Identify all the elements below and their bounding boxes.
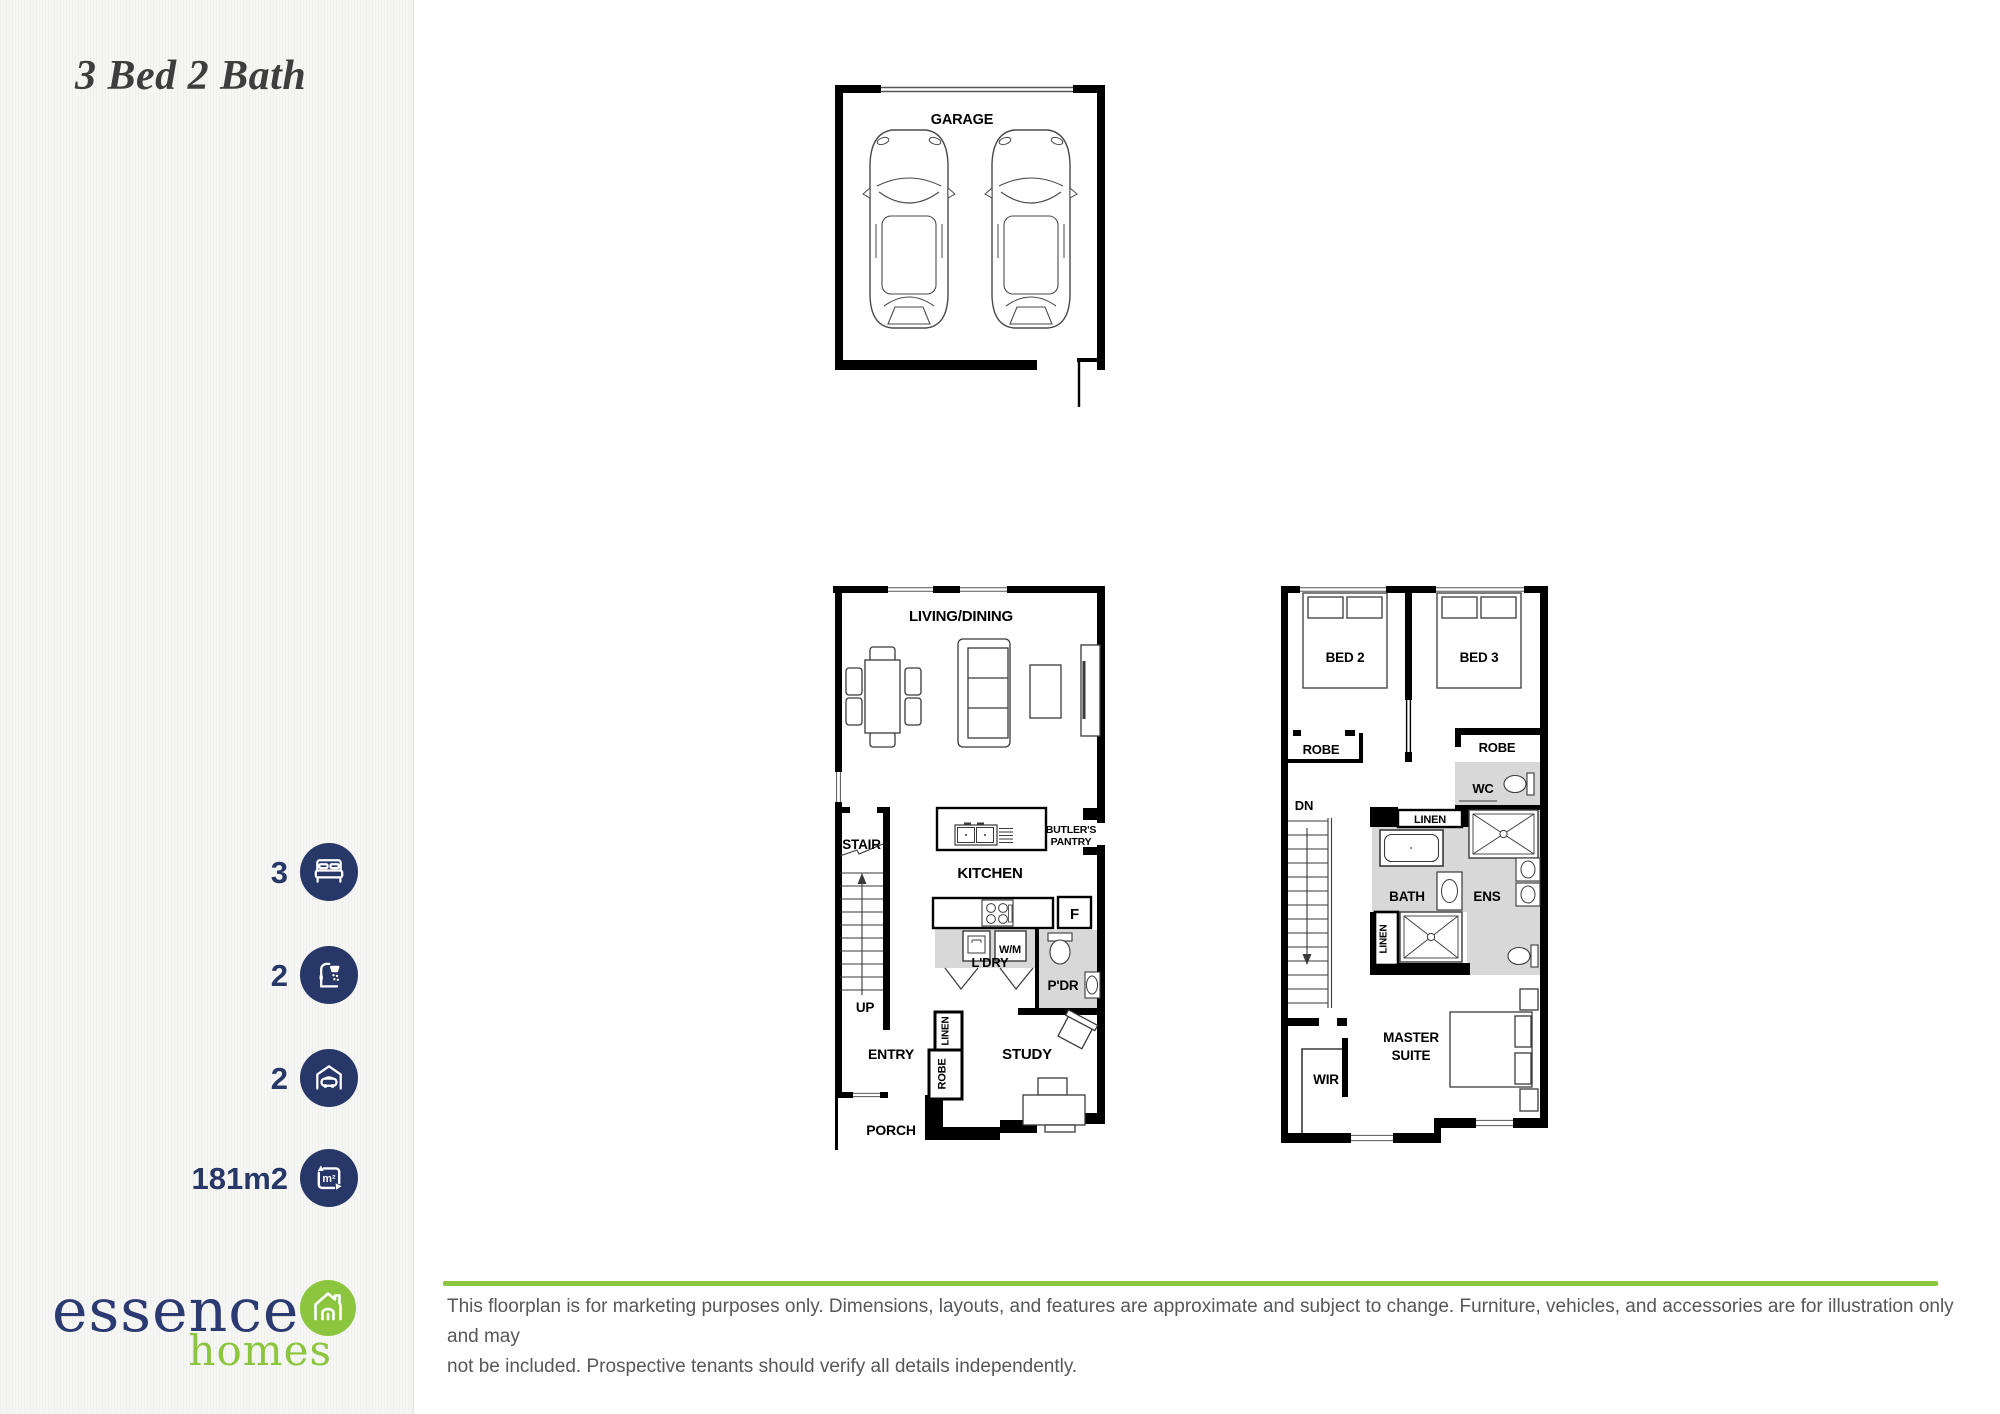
robe-label: ROBE [937,1059,949,1090]
spec-row-beds: 3 [150,843,360,903]
ens-shower-lower [1400,912,1462,962]
bed2-label: BED 2 [1326,650,1365,665]
kitchen-label: KITCHEN [957,865,1022,882]
shower-icon [300,946,358,1004]
study-desk [1023,1078,1085,1132]
tv-unit [1081,645,1100,736]
bath-basin [1437,872,1462,910]
spec-row-area: 181m2 m² [150,1149,360,1209]
spec-row-baths: 2 [150,946,360,1006]
pdr-label: P'DR [1048,978,1079,993]
bed-icon [300,843,358,901]
upper-floor-plan: BED 2 BED 3 ROBE ROBE WC DN [1281,583,1551,1145]
floorplan-page: 3 Bed 2 Bath 3 2 [0,0,2000,1414]
wir-label: WIR [1313,1072,1339,1087]
wir-room [1302,1049,1342,1133]
bath-label: BATH [1389,889,1425,904]
car-2 [985,130,1077,328]
butlers-pantry-label-1: BUTLER'S [1046,824,1097,836]
staircase-down [1288,818,1332,1008]
dn-label: DN [1295,798,1313,813]
linen-top-label: LINEN [1414,814,1446,826]
linen-side-label: LINEN [1379,924,1390,953]
footer-divider-line [443,1281,1938,1286]
stair-label: STAIR [842,837,881,852]
m2-icon-label: m² [322,1173,336,1185]
logo-homes-text: homes [150,1326,332,1375]
bed-count: 3 [150,855,288,891]
dining-set [846,647,921,747]
garage-label: GARAGE [931,112,994,128]
bathtub [1380,830,1443,866]
car-1 [863,130,955,328]
master-bed [1450,989,1538,1111]
linen-label: LINEN [941,1016,952,1045]
study-label: STUDY [1002,1046,1052,1063]
robe-right-label: ROBE [1479,740,1516,755]
bath-count: 2 [150,958,288,994]
disclaimer: This floorplan is for marketing purposes… [447,1292,1957,1382]
sofa [958,639,1010,747]
master-label-1: MASTER [1383,1030,1439,1045]
disclaimer-line-2: not be included. Prospective tenants sho… [447,1352,1957,1382]
ground-floor-plan: LIVING/DINING STAIR UP KITCHEN [833,583,1108,1150]
sidebar: 3 Bed 2 Bath 3 2 [0,0,414,1414]
kitchen-bench [933,898,1053,928]
ldry-label: L'DRY [972,955,1010,970]
bed-3 [1437,593,1521,688]
bed3-label: BED 3 [1460,650,1499,665]
butlers-pantry-label-2: PANTRY [1051,836,1092,848]
living-dining-label: LIVING/DINING [909,608,1013,625]
disclaimer-line-1: This floorplan is for marketing purposes… [447,1292,1957,1352]
floor-area-value: 181m2 [150,1161,288,1197]
bed-2 [1303,593,1387,688]
wc-label: WC [1472,781,1494,796]
master-label-2: SUITE [1392,1048,1431,1063]
study-chair [1055,1010,1097,1050]
spec-row-cars: 2 [150,1049,360,1109]
ens-shower-top [1469,810,1538,858]
car-count: 2 [150,1061,288,1097]
garage-plan: GARAGE [833,62,1123,412]
entry-label: ENTRY [868,1046,915,1062]
kitchen-island [937,808,1046,850]
ens-label: ENS [1473,889,1500,904]
floor-area-icon: m² [300,1149,358,1207]
car-garage-icon [300,1049,358,1107]
page-title: 3 Bed 2 Bath [75,52,395,100]
coffee-table [1030,665,1061,718]
staircase-up [840,844,883,995]
up-label: UP [856,1000,875,1015]
robe-left-label: ROBE [1303,742,1340,757]
porch-label: PORCH [866,1122,916,1138]
fridge-label: F [1070,906,1079,923]
